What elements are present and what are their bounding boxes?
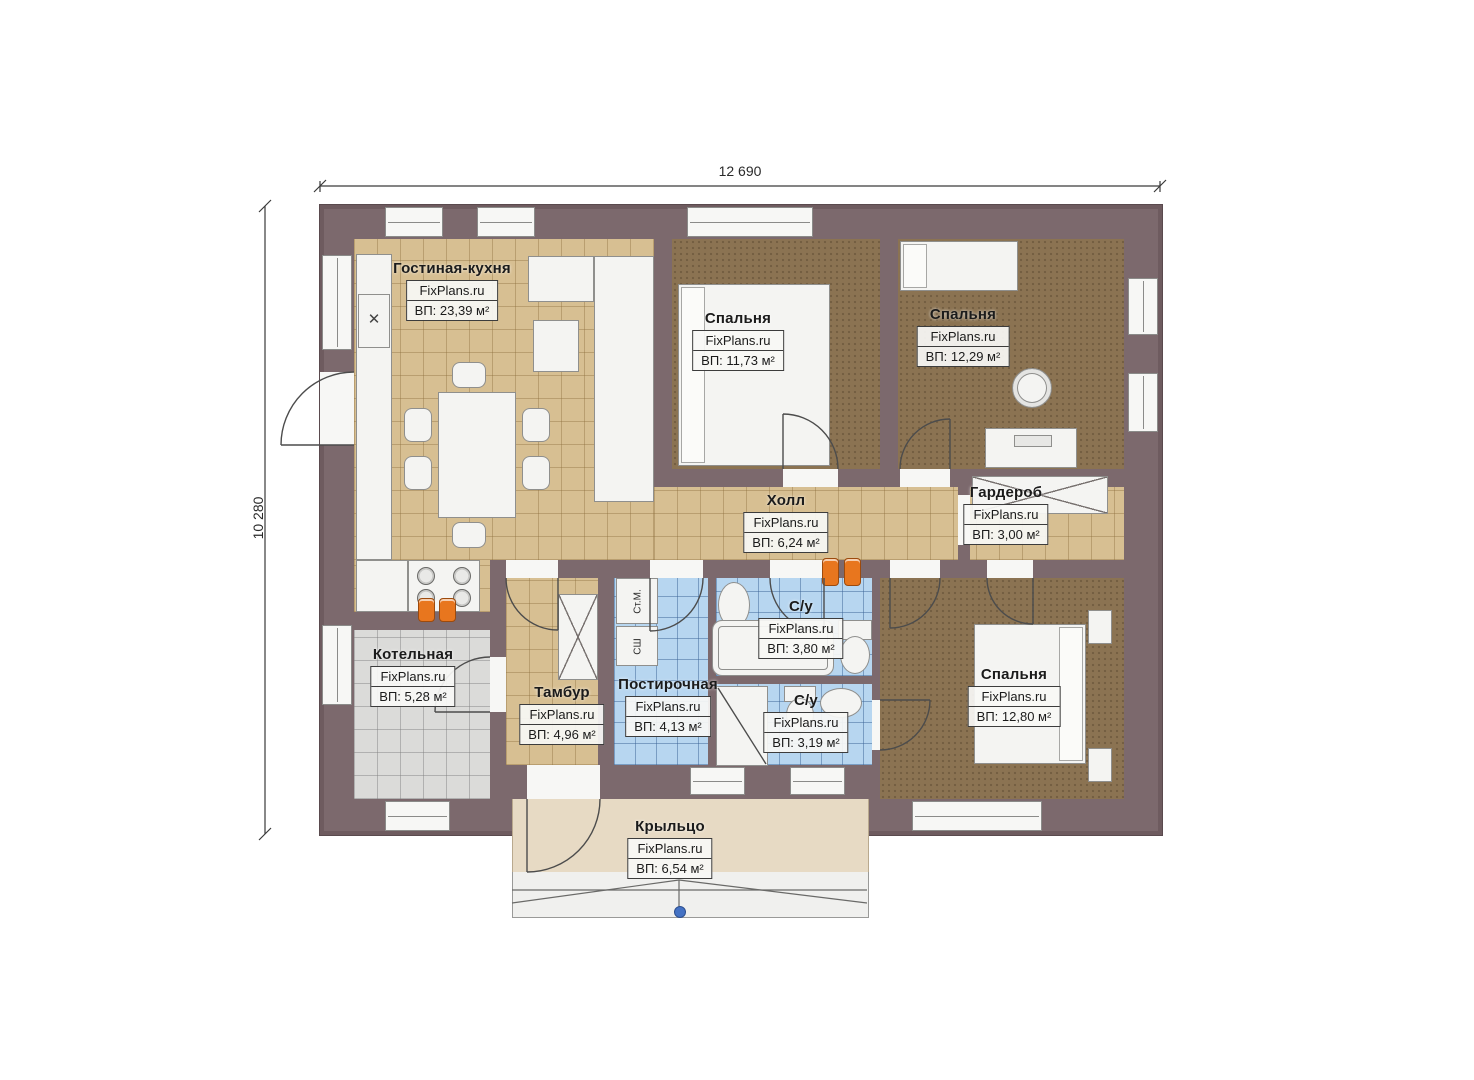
room-label-hall: Холл FixPlans.ruВП: 6,24 м² — [743, 492, 828, 553]
kitchen-sink: ✕ — [358, 294, 390, 348]
nightstand — [1088, 610, 1112, 644]
door-opening-bathroom1 — [770, 560, 824, 578]
room-label-porch: Крыльцо FixPlans.ruВП: 6,54 м² — [627, 818, 712, 879]
dining-chair — [522, 408, 550, 442]
watermark: FixPlans.ru — [628, 839, 711, 858]
dimension-width-label: 12 690 — [700, 163, 780, 179]
dimension-ticks-top — [314, 180, 1166, 192]
watermark: FixPlans.ru — [371, 667, 454, 686]
door-opening-bathroom2 — [872, 700, 880, 750]
door-opening-entrance-left — [320, 372, 354, 445]
dining-chair — [522, 456, 550, 490]
bed-pillow — [903, 244, 927, 288]
sofa-section-vertical — [594, 256, 654, 502]
room-label-bathroom1: С/у FixPlans.ruВП: 3,80 м² — [758, 598, 843, 659]
dining-table — [438, 392, 516, 518]
room-area: ВП: 6,24 м² — [744, 532, 827, 552]
watermark: FixPlans.ru — [693, 331, 783, 350]
watermark: FixPlans.ru — [759, 619, 842, 638]
sofa-section-chaise — [528, 256, 594, 302]
radiator — [439, 598, 456, 622]
room-label-bathroom2: С/у FixPlans.ruВП: 3,19 м² — [763, 692, 848, 753]
nightstand — [1088, 748, 1112, 782]
room-label-laundry: Постирочная FixPlans.ruВП: 4,13 м² — [618, 676, 718, 737]
door-opening-tambour — [506, 560, 558, 578]
window-bedroom1-top — [687, 207, 813, 237]
room-label-bedroom2: Спальня FixPlans.ruВП: 12,29 м² — [917, 306, 1010, 367]
wall-bathroom1-bathroom2 — [716, 676, 872, 684]
dimension-ext-top — [320, 181, 1160, 192]
window-bedroom2-right-1 — [1128, 278, 1158, 335]
radiator — [822, 558, 839, 586]
watermark: FixPlans.ru — [520, 705, 603, 724]
room-title: Гардероб — [963, 484, 1048, 501]
toilet-bowl-bathroom1 — [840, 636, 870, 674]
room-label-wardrobe: Гардероб FixPlans.ruВП: 3,00 м² — [963, 484, 1048, 545]
watermark: FixPlans.ru — [764, 713, 847, 732]
dryer-label: СШ — [633, 626, 644, 668]
room-title: С/у — [763, 692, 848, 709]
door-opening-bedroom2 — [900, 469, 950, 487]
room-title: Крыльцо — [627, 818, 712, 835]
room-label-bedroom3: Спальня FixPlans.ruВП: 12,80 м² — [968, 666, 1061, 727]
watermark: FixPlans.ru — [744, 513, 827, 532]
door-opening-entrance-porch — [527, 765, 600, 799]
tambour-closet — [558, 594, 598, 680]
room-title: С/у — [758, 598, 843, 615]
door-opening-bedroom1 — [783, 469, 838, 487]
room-area: ВП: 12,80 м² — [969, 706, 1060, 726]
window-living-left — [322, 255, 352, 350]
wall-living-bedroom1 — [654, 239, 672, 487]
watermark: FixPlans.ru — [626, 697, 709, 716]
dining-chair — [452, 522, 486, 548]
door-opening-bedroom3 — [890, 560, 940, 578]
kitchen-counter-bottom — [356, 560, 408, 612]
bed-pillow — [1059, 627, 1083, 761]
window-bedroom2-right-2 — [1128, 373, 1158, 432]
room-title: Тамбур — [519, 684, 604, 701]
dryer: СШ — [616, 626, 658, 666]
window-bathroom2-bottom — [790, 767, 845, 795]
stove-burner — [453, 567, 471, 585]
room-area: ВП: 3,19 м² — [764, 732, 847, 752]
watermark: FixPlans.ru — [969, 687, 1060, 706]
washing-machine: Ст.М. — [616, 578, 658, 624]
coffee-table — [533, 320, 579, 372]
room-area: ВП: 3,80 м² — [759, 638, 842, 658]
door-opening-laundry — [650, 560, 703, 578]
room-title: Спальня — [968, 666, 1061, 683]
room-label-tambour: Тамбур FixPlans.ruВП: 4,96 м² — [519, 684, 604, 745]
room-area: ВП: 11,73 м² — [693, 350, 783, 370]
bed-bedroom2 — [900, 241, 1018, 291]
room-area: ВП: 6,54 м² — [628, 858, 711, 878]
door-opening-boiler — [490, 657, 506, 712]
room-title: Котельная — [370, 646, 455, 663]
washing-machine-label: Ст.М. — [633, 581, 644, 623]
room-label-living: Гостиная-кухня FixPlans.ruВП: 23,39 м² — [393, 260, 511, 321]
room-title: Спальня — [917, 306, 1010, 323]
watermark: FixPlans.ru — [964, 505, 1047, 524]
window-living-top-2 — [477, 207, 535, 237]
radiator — [418, 598, 435, 622]
room-title: Постирочная — [618, 676, 718, 693]
room-title: Холл — [743, 492, 828, 509]
dining-chair — [404, 456, 432, 490]
window-boiler-bottom — [385, 801, 450, 831]
wall-bedroom1-bedroom2 — [880, 239, 898, 487]
desk-keyboard — [1014, 435, 1052, 447]
room-area: ВП: 4,13 м² — [626, 716, 709, 736]
watermark: FixPlans.ru — [407, 281, 498, 300]
room-area: ВП: 12,29 м² — [918, 346, 1009, 366]
desk-bedroom2 — [985, 428, 1077, 468]
room-label-bedroom1: Спальня FixPlans.ruВП: 11,73 м² — [692, 310, 784, 371]
shower-tray — [716, 686, 768, 766]
door-opening-bedroom3-closet — [987, 560, 1033, 578]
room-title: Спальня — [692, 310, 784, 327]
window-bedroom3-bottom — [912, 801, 1042, 831]
room-area: ВП: 3,00 м² — [964, 524, 1047, 544]
window-boiler-left — [322, 625, 352, 705]
room-area: ВП: 23,39 м² — [407, 300, 498, 320]
dining-chair — [452, 362, 486, 388]
window-living-top-1 — [385, 207, 443, 237]
window-laundry-bottom — [690, 767, 745, 795]
radiator — [844, 558, 861, 586]
room-label-boiler: Котельная FixPlans.ruВП: 5,28 м² — [370, 646, 455, 707]
porch-marker-dot — [674, 906, 686, 918]
room-area: ВП: 4,96 м² — [520, 724, 603, 744]
room-title: Гостиная-кухня — [393, 260, 511, 277]
stove-burner — [417, 567, 435, 585]
watermark: FixPlans.ru — [918, 327, 1009, 346]
room-area: ВП: 5,28 м² — [371, 686, 454, 706]
floor-plan-canvas: 12 690 10 280 — [0, 0, 1474, 1080]
plant-pot — [1012, 368, 1052, 408]
dining-chair — [404, 408, 432, 442]
dimension-height-label: 10 280 — [250, 478, 266, 558]
